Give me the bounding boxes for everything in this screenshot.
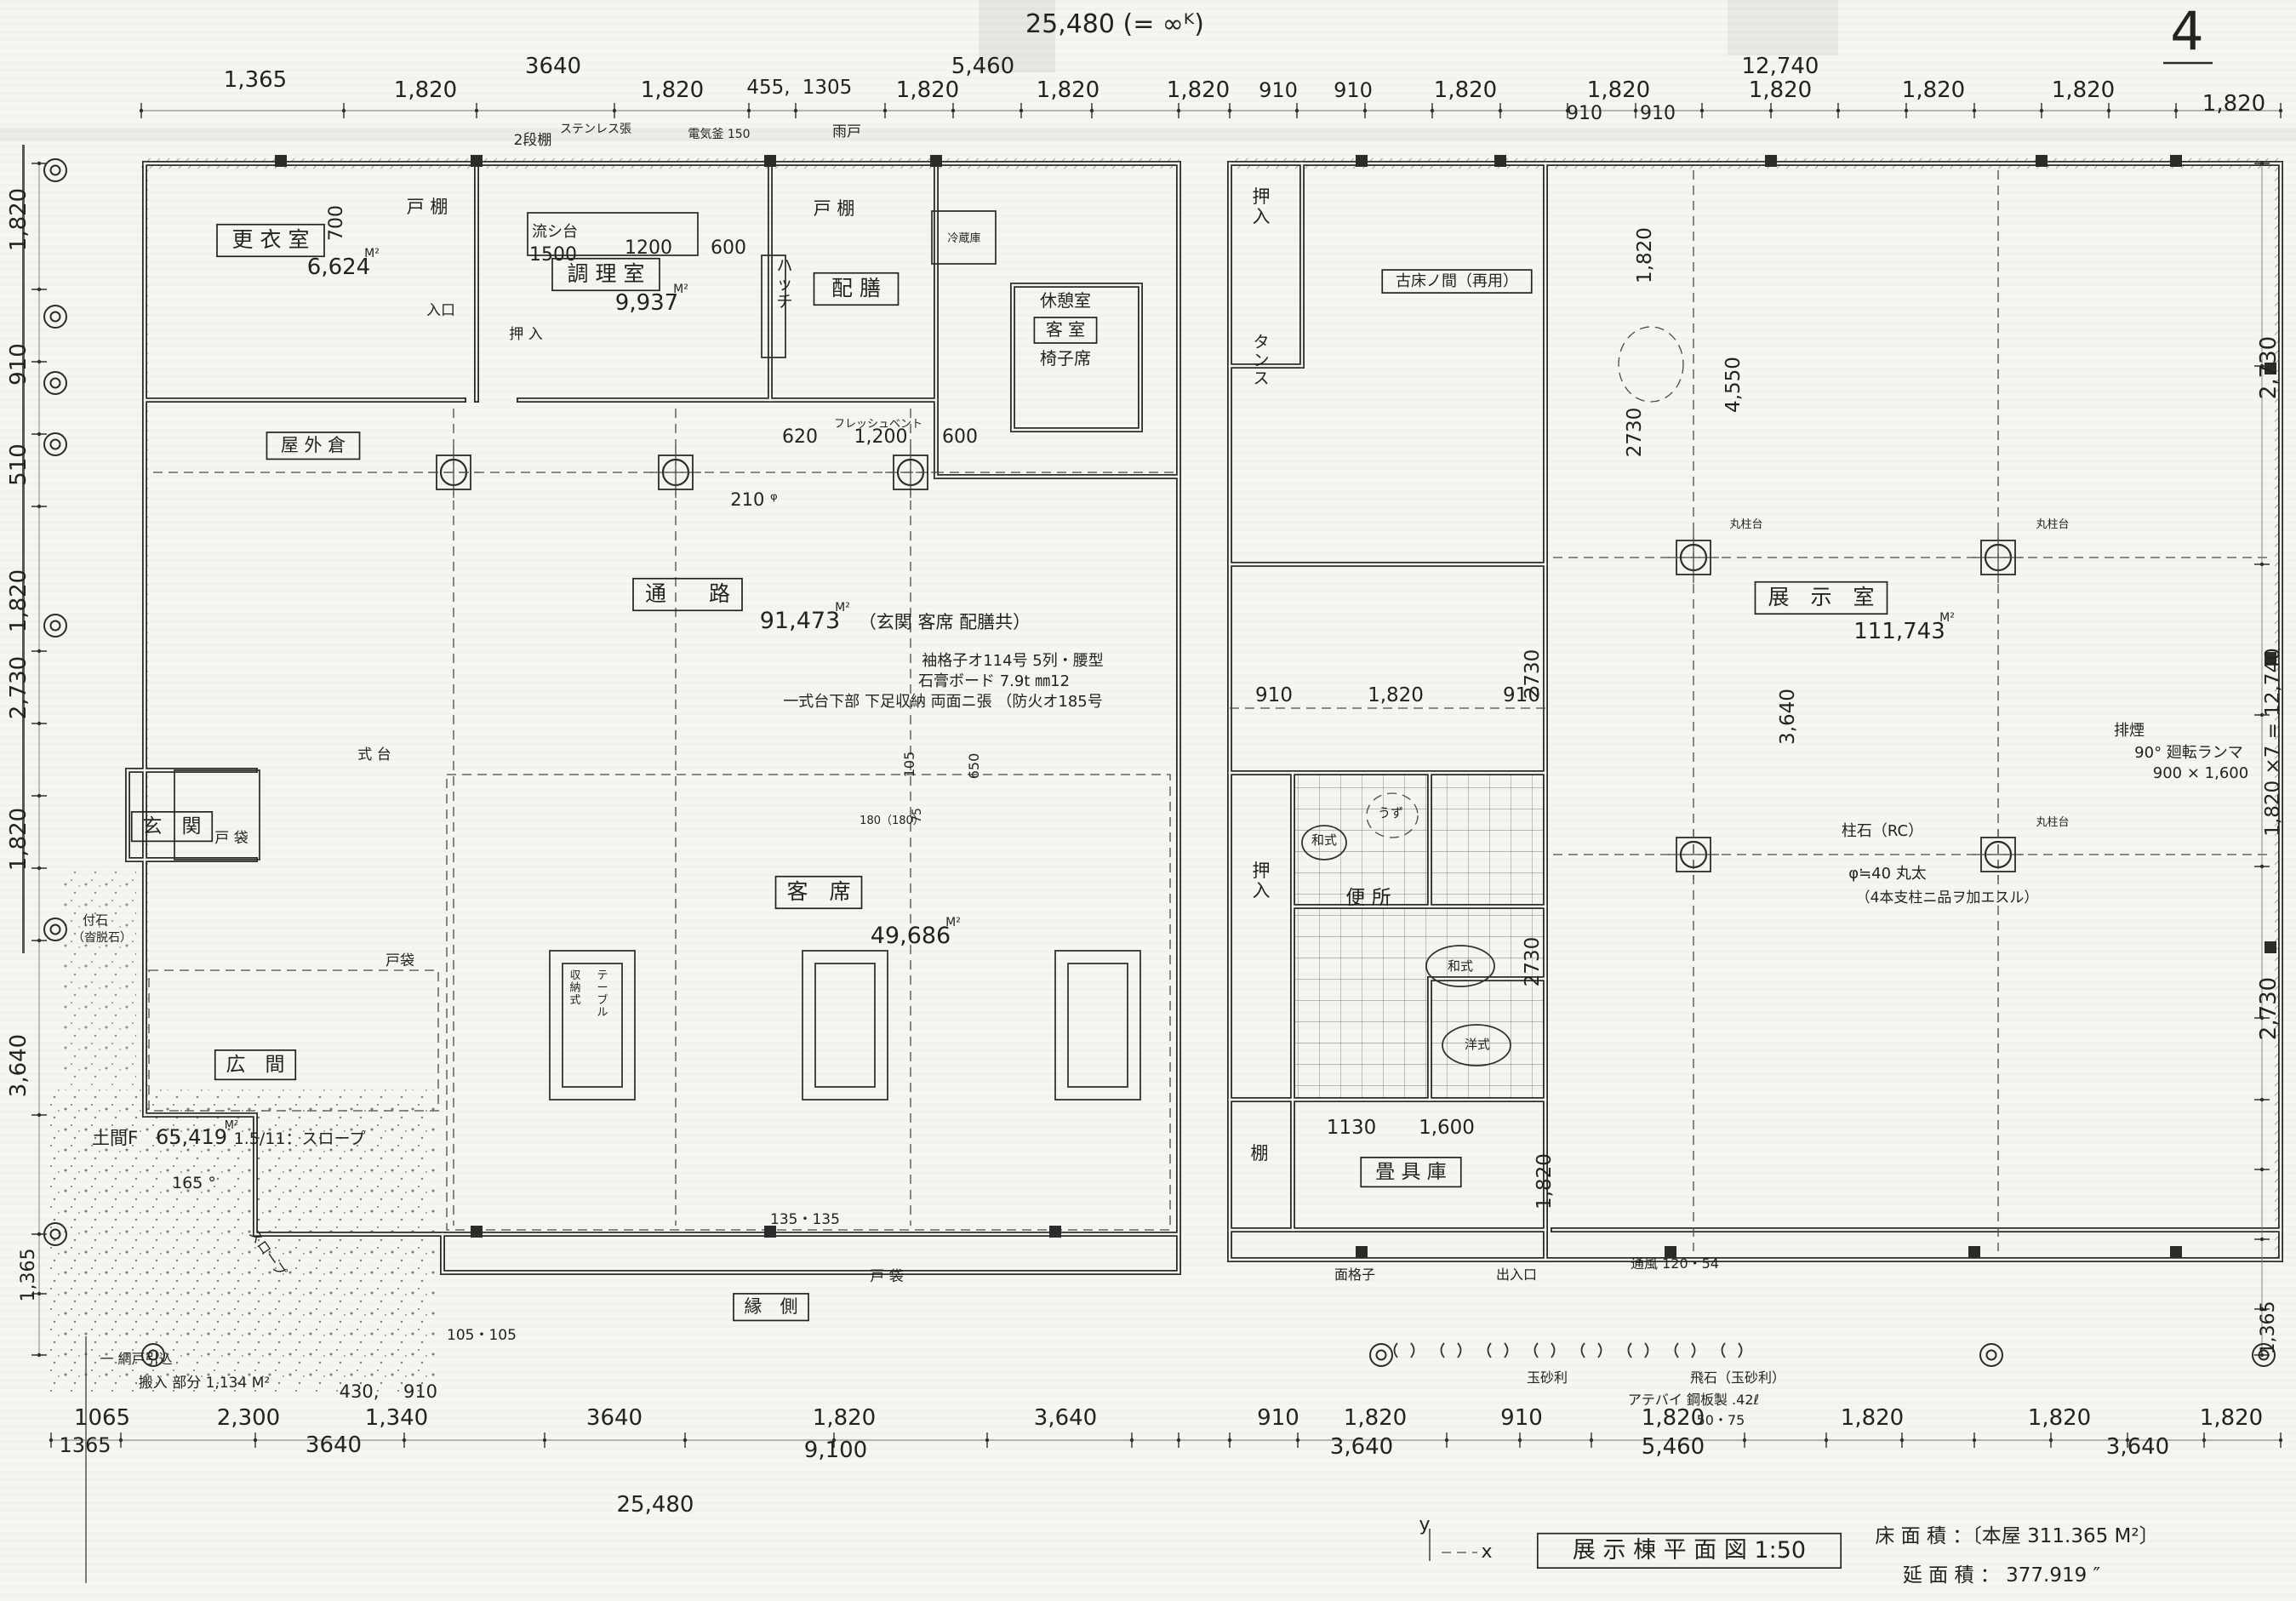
wall-post bbox=[1356, 1246, 1368, 1258]
wall-post bbox=[471, 1226, 483, 1238]
dim-label: 1,820 bbox=[1902, 77, 1965, 103]
toilet-tile-floor bbox=[1294, 775, 1544, 1098]
dim-label: 910 bbox=[6, 343, 31, 386]
dim-label: 1.5/11：スロープ bbox=[234, 1129, 366, 1148]
dim-label: 111,743 bbox=[1853, 619, 1945, 644]
dim-label: 910 bbox=[1259, 78, 1298, 102]
dim-label: 900 × 1,600 bbox=[2153, 764, 2248, 782]
dim-label: 一 網戸引込 bbox=[100, 1351, 172, 1367]
dim-label: φ≒40 丸太 bbox=[1848, 865, 1927, 883]
dim-label: 2730 bbox=[1624, 408, 1646, 458]
dim-label: 丸柱台 bbox=[2036, 518, 2069, 531]
floor-plan-sheet: 展示棟 平面図 1:50 25,480 (= ∞ bbox=[0, 0, 2296, 1601]
dim-label: 1,365 bbox=[224, 67, 287, 93]
dim-label: 5,460 bbox=[951, 54, 1014, 79]
wall-post bbox=[2170, 1246, 2182, 1258]
room-label-koiishitsu: 更 衣 室 bbox=[232, 227, 310, 252]
dim-label: 3640 bbox=[586, 1405, 643, 1431]
dim-label: 455, bbox=[746, 77, 790, 99]
wall-post bbox=[2036, 155, 2048, 167]
dim-label: 和式 bbox=[1311, 832, 1337, 848]
dim-label: 1130 bbox=[1327, 1117, 1377, 1139]
dim-label: M² bbox=[835, 601, 850, 615]
dim-label: 910 bbox=[1255, 684, 1293, 706]
dim-label: 式 台 bbox=[357, 746, 391, 763]
note-line1: 袖格子オ114号 5列・腰型 bbox=[922, 652, 1104, 670]
circled-marker bbox=[44, 159, 66, 181]
wall-post bbox=[1494, 155, 1506, 167]
dim-label: 600 bbox=[942, 426, 978, 448]
dim-label: 3640 bbox=[306, 1432, 362, 1458]
note-hannyu: 搬入 部分 1,134 M² bbox=[139, 1375, 270, 1392]
dim-label: M² bbox=[945, 916, 961, 929]
dim-label: 1,820 bbox=[6, 569, 31, 632]
dim-label: 冷蔵庫 bbox=[947, 232, 980, 245]
module-grid-dashed bbox=[149, 170, 2272, 1251]
dim-label: 入口 bbox=[426, 302, 455, 319]
dim-label: 910 bbox=[1567, 103, 1602, 124]
dim-label: 1,820 bbox=[2028, 1405, 2091, 1431]
wall-post bbox=[1356, 155, 1368, 167]
floor-area-main: 床 面 積 ：〔本屋 311.365 M²〕 bbox=[1875, 1525, 2158, 1547]
room-label-engawa: 縁 側 bbox=[745, 1296, 798, 1317]
floor-plan-drawing: 展示棟 平面図 1:50 25,480 (= ∞ bbox=[0, 0, 2296, 1601]
wall-post bbox=[275, 155, 287, 167]
dim-label: 700 bbox=[326, 205, 347, 241]
dim-label: 2段棚 bbox=[514, 132, 552, 149]
dim-label: 2,300 bbox=[217, 1405, 280, 1431]
dim-label: 戸袋 bbox=[386, 952, 414, 969]
dim-label: 流シ台 bbox=[532, 223, 578, 241]
room-label-hiroma: 広 間 bbox=[226, 1054, 285, 1076]
dim-label: 1,820 bbox=[2202, 91, 2265, 117]
dim-label: 戸 袋 bbox=[870, 1268, 903, 1285]
room-label-tenji: 展 示 室 bbox=[1768, 585, 1874, 609]
dim-label: 和式 bbox=[1448, 958, 1473, 974]
dim-label: 1,820 bbox=[2052, 77, 2115, 103]
dim-label: 2730 bbox=[1522, 649, 1544, 700]
circled-marker bbox=[44, 306, 66, 328]
dim-label: （玄関 客席 配膳共） bbox=[859, 612, 1031, 632]
dim-label: 土間F bbox=[92, 1128, 138, 1148]
dim-label: 1365 bbox=[59, 1433, 111, 1457]
circled-marker bbox=[1370, 1344, 1392, 1366]
dim-label: 1,820 bbox=[1534, 1153, 1556, 1209]
dim-label: 1,820 bbox=[896, 77, 959, 103]
dim-label: 1,820 bbox=[1434, 77, 1497, 103]
dim-label: 通風 120・54 bbox=[1631, 1255, 1719, 1272]
dim-label: 105・105 bbox=[447, 1327, 517, 1344]
dim-label: 650 bbox=[966, 753, 982, 780]
dim-label: 玉砂利 bbox=[1527, 1369, 1568, 1386]
wall-post bbox=[2170, 155, 2182, 167]
wall-post bbox=[2265, 941, 2276, 953]
dim-label: 3,640 bbox=[2106, 1434, 2169, 1460]
dim-label: 910 bbox=[1334, 78, 1373, 102]
dim-label: 1,820 bbox=[1368, 684, 1424, 706]
sheet-number: 4 bbox=[2170, 0, 2203, 62]
room-label-okugai: 屋 外 倉 bbox=[281, 435, 346, 455]
dim-label: 3,640 bbox=[1034, 1405, 1097, 1431]
dim-label: 洋式 bbox=[1465, 1037, 1490, 1052]
dim-label: 910 bbox=[1500, 1405, 1543, 1431]
dim-label: 3,640 bbox=[1330, 1434, 1393, 1460]
wall-post bbox=[1765, 155, 1777, 167]
wall-post bbox=[1049, 1226, 1061, 1238]
dim-label: 65,419 bbox=[156, 1125, 227, 1149]
note-haien: 排煙 bbox=[2114, 722, 2145, 740]
dim-label: 1,820 bbox=[6, 808, 31, 871]
dim-label: 3640 bbox=[525, 54, 581, 79]
dim-label: 910 bbox=[1257, 1405, 1299, 1431]
dim-label: 5,460 bbox=[1642, 1434, 1705, 1460]
note-hashira: 柱石（RC） bbox=[1842, 822, 1923, 840]
dim-label: 1305 bbox=[802, 77, 853, 99]
dim-overall-bottom: 25,480 bbox=[617, 1492, 694, 1518]
dim-label: 面格子 bbox=[1334, 1267, 1375, 1283]
drawing-title: 展 示 棟 平 面 図 1:50 bbox=[1573, 1537, 1806, 1564]
dim-label: 910 bbox=[403, 1381, 437, 1402]
room-label-chorishitsu: 調 理 室 bbox=[568, 261, 645, 286]
dim-label: 6,624 bbox=[307, 254, 370, 280]
dim-label: 4,550 bbox=[1722, 357, 1745, 413]
dim-label: 12,740 bbox=[1742, 54, 1819, 79]
dim-label: うず bbox=[1378, 805, 1403, 821]
wall-post bbox=[930, 155, 942, 167]
dim-label: 1,365 bbox=[18, 1249, 39, 1302]
dim-label: 91,473 bbox=[760, 608, 840, 634]
dim-label: 1,340 bbox=[365, 1405, 428, 1431]
fixture bbox=[1619, 327, 1683, 402]
room-label-tsuro: 通 路 bbox=[645, 581, 730, 606]
dim-label: 客 室 bbox=[1046, 319, 1085, 340]
note-line3: 一式台下部 下足収納 両面ニ張 （防火オ185号 bbox=[783, 693, 1103, 711]
dim-label: 飛石（玉砂利） bbox=[1690, 1369, 1785, 1386]
walls bbox=[128, 163, 2281, 1272]
dim-label: 510 bbox=[6, 443, 31, 486]
dim-label: フレッシュベント bbox=[834, 418, 922, 431]
dim-label: 1,820 bbox=[1634, 227, 1656, 283]
dim-label: 1,820 bbox=[1587, 77, 1650, 103]
dim-label: 3,640 bbox=[1777, 689, 1799, 745]
dim-label: 1,365 bbox=[2258, 1301, 2279, 1355]
dim-label: 165 ° bbox=[172, 1174, 216, 1192]
room-label-kyakuseki: 客 席 bbox=[786, 879, 850, 904]
dim-label: タンス bbox=[1253, 333, 1269, 388]
circled-marker bbox=[1980, 1344, 2002, 1366]
dim-label: 1065 bbox=[74, 1405, 130, 1431]
dim-label: 1,820 bbox=[641, 77, 704, 103]
dim-label: M² bbox=[364, 247, 380, 260]
dim-label: 1,820 bbox=[1841, 1405, 1904, 1431]
wall-post bbox=[1968, 1246, 1980, 1258]
dim-label: 2,730 bbox=[2256, 977, 2282, 1040]
dim-label: 1,600 bbox=[1419, 1117, 1475, 1139]
dim-label: 押入 bbox=[1253, 861, 1271, 901]
dim-label: 1200 bbox=[625, 237, 672, 259]
wall-post bbox=[471, 155, 483, 167]
dim-label: テーブル bbox=[597, 969, 608, 1020]
dim-label: 戸 棚 bbox=[814, 198, 855, 219]
room-label-genkan: 玄 関 bbox=[143, 815, 202, 838]
axis-y: y bbox=[1419, 1514, 1430, 1535]
dim-label: 2730 bbox=[1522, 937, 1544, 987]
dim-label: 600 bbox=[711, 237, 746, 259]
dim-label: 出入口 bbox=[1496, 1267, 1537, 1283]
room-label-benjo: 便 所 bbox=[1345, 887, 1391, 909]
dim-label: 1,820 bbox=[1344, 1405, 1407, 1431]
dim-label: M² bbox=[673, 283, 688, 296]
dim-label: M² bbox=[1939, 611, 1955, 625]
dim-label: 戸 袋 bbox=[214, 830, 248, 847]
dim-label: 3,640 bbox=[6, 1034, 31, 1097]
dim-label: 1500 bbox=[529, 244, 577, 266]
dim-label: 休憩室 bbox=[1040, 290, 1091, 311]
dim-overall-top: 25,480 (= ∞ᴷ) bbox=[1025, 9, 1204, 39]
dim-label: 2,730 bbox=[2256, 336, 2282, 399]
dim-label: 収納式 bbox=[569, 969, 580, 1007]
room-label-haizen: 配 膳 bbox=[831, 276, 881, 300]
dim-label: 90° 廻転ランマ bbox=[2134, 744, 2243, 762]
dim-label: 丸柱台 bbox=[2036, 816, 2069, 829]
dim-label: 1,820 bbox=[6, 188, 31, 251]
dim-label: 210 ᵠ bbox=[730, 489, 777, 510]
dim-label: 1,820 bbox=[1037, 77, 1099, 103]
dim-label: 1,820 bbox=[2200, 1405, 2263, 1431]
dim-label: 付石 bbox=[83, 912, 108, 928]
dim-label: 椅子席 bbox=[1040, 348, 1091, 369]
dim-label: （沓脱石） bbox=[72, 931, 132, 945]
dim-label: 1,820 bbox=[394, 77, 457, 103]
dim-label: 620 bbox=[782, 426, 818, 448]
circled-marker bbox=[44, 372, 66, 394]
dim-label: 2,730 bbox=[6, 656, 31, 719]
dim-label: 49,686 bbox=[871, 923, 951, 949]
floor-area-total: 延 面 積 ： 377.919 ″ bbox=[1903, 1564, 2101, 1587]
dim-label: 9,100 bbox=[804, 1438, 867, 1463]
dim-label: 押入 bbox=[1253, 186, 1271, 227]
dim-label: 1,820 bbox=[1749, 77, 1812, 103]
columns bbox=[275, 155, 2276, 1258]
dim-right-module: 1,820 ×7 = 12,740 bbox=[2262, 648, 2284, 836]
dim-label: ハッチ bbox=[776, 256, 792, 312]
dim-label: 135・135 bbox=[770, 1211, 840, 1228]
wall-post bbox=[764, 155, 776, 167]
dim-label: （4本支柱ニ品ヲ加エスル） bbox=[1856, 889, 2039, 906]
dim-label: 1,820 bbox=[1642, 1405, 1705, 1431]
dim-label: 1,820 bbox=[813, 1405, 876, 1431]
dim-label: 丸柱台 bbox=[1729, 518, 1762, 531]
dim-label: 180（180） bbox=[860, 815, 924, 827]
room-label-tokonoma: 古床ノ間（再用） bbox=[1396, 272, 1518, 290]
circled-marker bbox=[44, 615, 66, 637]
wall-hatching bbox=[141, 158, 2281, 1260]
dim-label: 105 bbox=[901, 752, 917, 778]
dim-label: 戸 棚 bbox=[407, 197, 448, 217]
axis-x: x bbox=[1481, 1541, 1492, 1563]
note-line2: 石膏ボード 7.9t ㎜12 bbox=[918, 672, 1070, 690]
dim-label: ステンレス張 bbox=[560, 123, 631, 136]
dim-label: 押 入 bbox=[509, 326, 542, 343]
room-label-tatamigura: 畳 具 庫 bbox=[1375, 1161, 1447, 1183]
circled-marker bbox=[44, 433, 66, 455]
dim-label: 棚 bbox=[1251, 1143, 1269, 1164]
dim-label: 430, bbox=[340, 1381, 380, 1402]
dim-label: 9,937 bbox=[615, 290, 678, 316]
dim-label: 雨戸 bbox=[832, 123, 861, 140]
dim-label: 1,820 bbox=[1167, 77, 1230, 103]
dim-label: 電気釜 150 bbox=[688, 128, 750, 141]
dim-label: 910 bbox=[1640, 103, 1676, 124]
